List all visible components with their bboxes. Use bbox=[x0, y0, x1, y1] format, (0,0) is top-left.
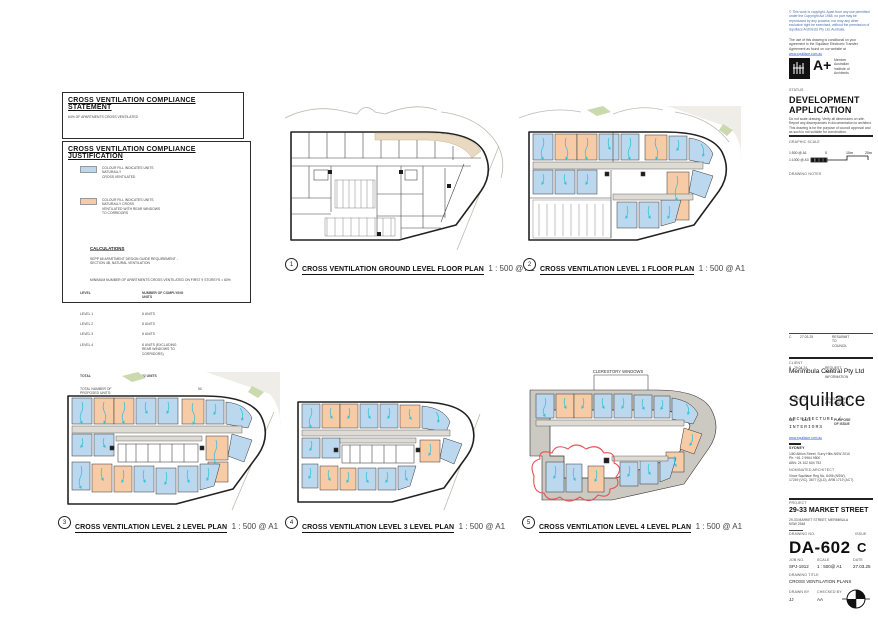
calculations-heading: CALCULATIONS bbox=[90, 246, 175, 251]
nominated-architect-text: Vince Squillace Reg No. 6496 (NSW), 1724… bbox=[789, 474, 873, 483]
plan-title-level3: 4 CROSS VENTILATION LEVEL 3 LEVEL PLAN 1… bbox=[285, 516, 505, 534]
plan-number-badge: 3 bbox=[58, 516, 71, 529]
institute-member-text: Member Australian Institute of Architect… bbox=[834, 58, 872, 75]
architects-sketch-icon bbox=[789, 58, 810, 79]
calc-line2: MINIMUM NUMBER OF APARTMENTS CROSS VENTI… bbox=[90, 278, 245, 282]
justification-title: CROSS VENTILATION COMPLIANCE JUSTIFICATI… bbox=[68, 146, 245, 160]
client-label: CLIENT bbox=[789, 361, 819, 365]
client-name: Merimbula Central Pty Ltd bbox=[789, 368, 864, 375]
plan-scale-text: 1 : 500 @ A1 bbox=[232, 522, 278, 531]
svg-text:10m: 10m bbox=[846, 151, 853, 155]
project-address: 29-33 MARKET STREET, MERIMBULA NSW 2548 bbox=[789, 518, 873, 527]
calc-line1: SEPP 65 APARTMENT DESIGN GUIDE REQUIREME… bbox=[90, 257, 245, 266]
checked-by-value: AA bbox=[817, 597, 829, 603]
copyright-website-link[interactable]: www.squillace.com.au bbox=[789, 52, 873, 56]
plan-title-text: CROSS VENTILATION LEVEL 3 LEVEL PLAN bbox=[302, 524, 454, 533]
plan-scale-text: 1 : 500 @ A1 bbox=[699, 264, 745, 273]
table-col-units: NUMBER OF COMPLYING UNITS bbox=[142, 291, 185, 300]
compliance-statement-title: CROSS VENTILATION COMPLIANCE STATEMENT bbox=[68, 97, 238, 111]
drawing-sheet: CROSS VENTILATION COMPLIANCE STATEMENT 6… bbox=[0, 0, 878, 620]
plan-title-level1: 2 CROSS VENTILATION LEVEL 1 FLOOR PLAN 1… bbox=[523, 258, 745, 276]
drawing-title-label: DRAWING TITLE bbox=[789, 573, 855, 577]
plan-title-level2: 3 CROSS VENTILATION LEVEL 2 LEVEL PLAN 1… bbox=[58, 516, 278, 534]
floor-plan-level1-drawing bbox=[517, 88, 747, 256]
floor-plan-level4-drawing: CLERESTORY WINDOWS bbox=[516, 360, 730, 512]
floor-plan-level2-drawing bbox=[56, 358, 286, 514]
office-address: 1/80 Albion Street, Surry Hills NSW 2010… bbox=[789, 452, 873, 465]
table-row: LEVEL 18 UNITS bbox=[80, 312, 245, 322]
floor-plan-level1 bbox=[517, 88, 747, 256]
drawing-number: DA-602 bbox=[789, 538, 851, 558]
plan-number-badge: 4 bbox=[285, 516, 298, 529]
scale-row1-label: 1:500 @ A1 bbox=[789, 151, 807, 155]
svg-text:0: 0 bbox=[825, 151, 827, 155]
issue-value: C bbox=[857, 540, 866, 555]
issue-label: ISSUE bbox=[855, 532, 878, 536]
floor-plan-level2 bbox=[56, 358, 286, 514]
disclaimer-text: Do not scale drawing. Verify all dimensi… bbox=[789, 117, 873, 134]
scale-label: SCALE bbox=[817, 558, 845, 562]
office-label: SYDNEY bbox=[789, 446, 824, 450]
legend-swatch-blue bbox=[80, 166, 97, 173]
table-row: LEVEL 38 UNITS bbox=[80, 332, 245, 342]
aplus-label: A+ bbox=[813, 58, 831, 72]
copyright-text-2: The use of this drawing is conditional o… bbox=[789, 38, 873, 51]
floor-plan-level3 bbox=[288, 370, 490, 514]
plan-title-text: CROSS VENTILATION GROUND LEVEL FLOOR PLA… bbox=[302, 266, 484, 275]
drawing-notes-label: DRAWING NOTES bbox=[789, 172, 861, 176]
drawn-by-value: JJ bbox=[789, 597, 798, 603]
legend-label-orange: COLOUR FILL INDICATES UNITS NATURALLY CR… bbox=[102, 198, 162, 215]
floor-plan-level3-drawing bbox=[288, 370, 490, 514]
floor-plan-ground-drawing bbox=[281, 88, 505, 256]
floor-plan-level4: CLERESTORY WINDOWS bbox=[516, 360, 730, 512]
logo-subtitle-1: ARCHITECTURE / bbox=[789, 416, 873, 423]
date-label: DATE bbox=[853, 558, 875, 562]
logo-subtitle-2: INTERIORS bbox=[789, 424, 845, 431]
divider bbox=[789, 333, 873, 334]
status-value: DEVELOPMENT APPLICATION bbox=[789, 95, 873, 116]
date-value: 27.03.25 bbox=[853, 564, 878, 570]
squillace-logo: squillace bbox=[789, 390, 866, 412]
table-row: LEVEL 28 UNITS bbox=[80, 322, 245, 332]
table-col-level: LEVEL bbox=[80, 291, 106, 300]
graphic-scale-bar: 1:500 @ A1 1:1000 @ A3 0 10m 20m bbox=[789, 148, 873, 170]
divider bbox=[789, 357, 873, 359]
plan-number-badge: 5 bbox=[522, 516, 535, 529]
nominated-architect-label: NOMINATED ARCHITECT bbox=[789, 468, 873, 472]
plan-title-text: CROSS VENTILATION LEVEL 1 FLOOR PLAN bbox=[540, 266, 694, 275]
status-label: STATUS bbox=[789, 88, 821, 92]
project-label: PROJECT bbox=[789, 501, 828, 505]
graphic-scale-label: GRAPHIC SCALE bbox=[789, 140, 858, 144]
legend-swatch-orange bbox=[80, 198, 97, 205]
plan-title-text: CROSS VENTILATION LEVEL 2 LEVEL PLAN bbox=[75, 524, 227, 533]
divider bbox=[789, 498, 873, 500]
divider bbox=[789, 443, 801, 445]
compliance-statement-body: 64% OF APARTMENTS CROSS VENTILATED bbox=[68, 115, 238, 119]
clerestory-windows-label: CLERESTORY WINDOWS bbox=[593, 369, 644, 374]
divider bbox=[789, 530, 803, 531]
plan-number-badge: 1 bbox=[285, 258, 298, 271]
compliance-statement-box: CROSS VENTILATION COMPLIANCE STATEMENT 6… bbox=[62, 92, 244, 139]
compliance-justification-box: CROSS VENTILATION COMPLIANCE JUSTIFICATI… bbox=[62, 141, 251, 303]
website-link[interactable]: www.squillace.com.au bbox=[789, 436, 868, 440]
plan-title-text: CROSS VENTILATION LEVEL 4 LEVEL PLAN bbox=[539, 524, 691, 533]
legend-label-blue: COLOUR FILL INDICATES UNITS NATURALLY CR… bbox=[102, 166, 162, 179]
floor-plan-ground bbox=[281, 88, 505, 256]
svg-text:20m: 20m bbox=[865, 151, 872, 155]
plan-scale-text: 1 : 500 @ A1 bbox=[696, 522, 742, 531]
plan-number-badge: 2 bbox=[523, 258, 536, 271]
divider bbox=[789, 135, 873, 137]
plan-title-level4: 5 CROSS VENTILATION LEVEL 4 LEVEL PLAN 1… bbox=[522, 516, 742, 534]
project-name: 29-33 MARKET STREET bbox=[789, 507, 868, 514]
drawing-no-label: DRAWING NO. bbox=[789, 532, 847, 536]
north-point-icon bbox=[841, 584, 871, 619]
plan-title-ground: 1 CROSS VENTILATION GROUND LEVEL FLOOR P… bbox=[285, 258, 535, 276]
copyright-text-1: © This work is copyright. Apart from any… bbox=[789, 10, 873, 32]
plan-scale-text: 1 : 500 @ A1 bbox=[459, 522, 505, 531]
scale-row2-label: 1:1000 @ A3 bbox=[789, 158, 809, 162]
